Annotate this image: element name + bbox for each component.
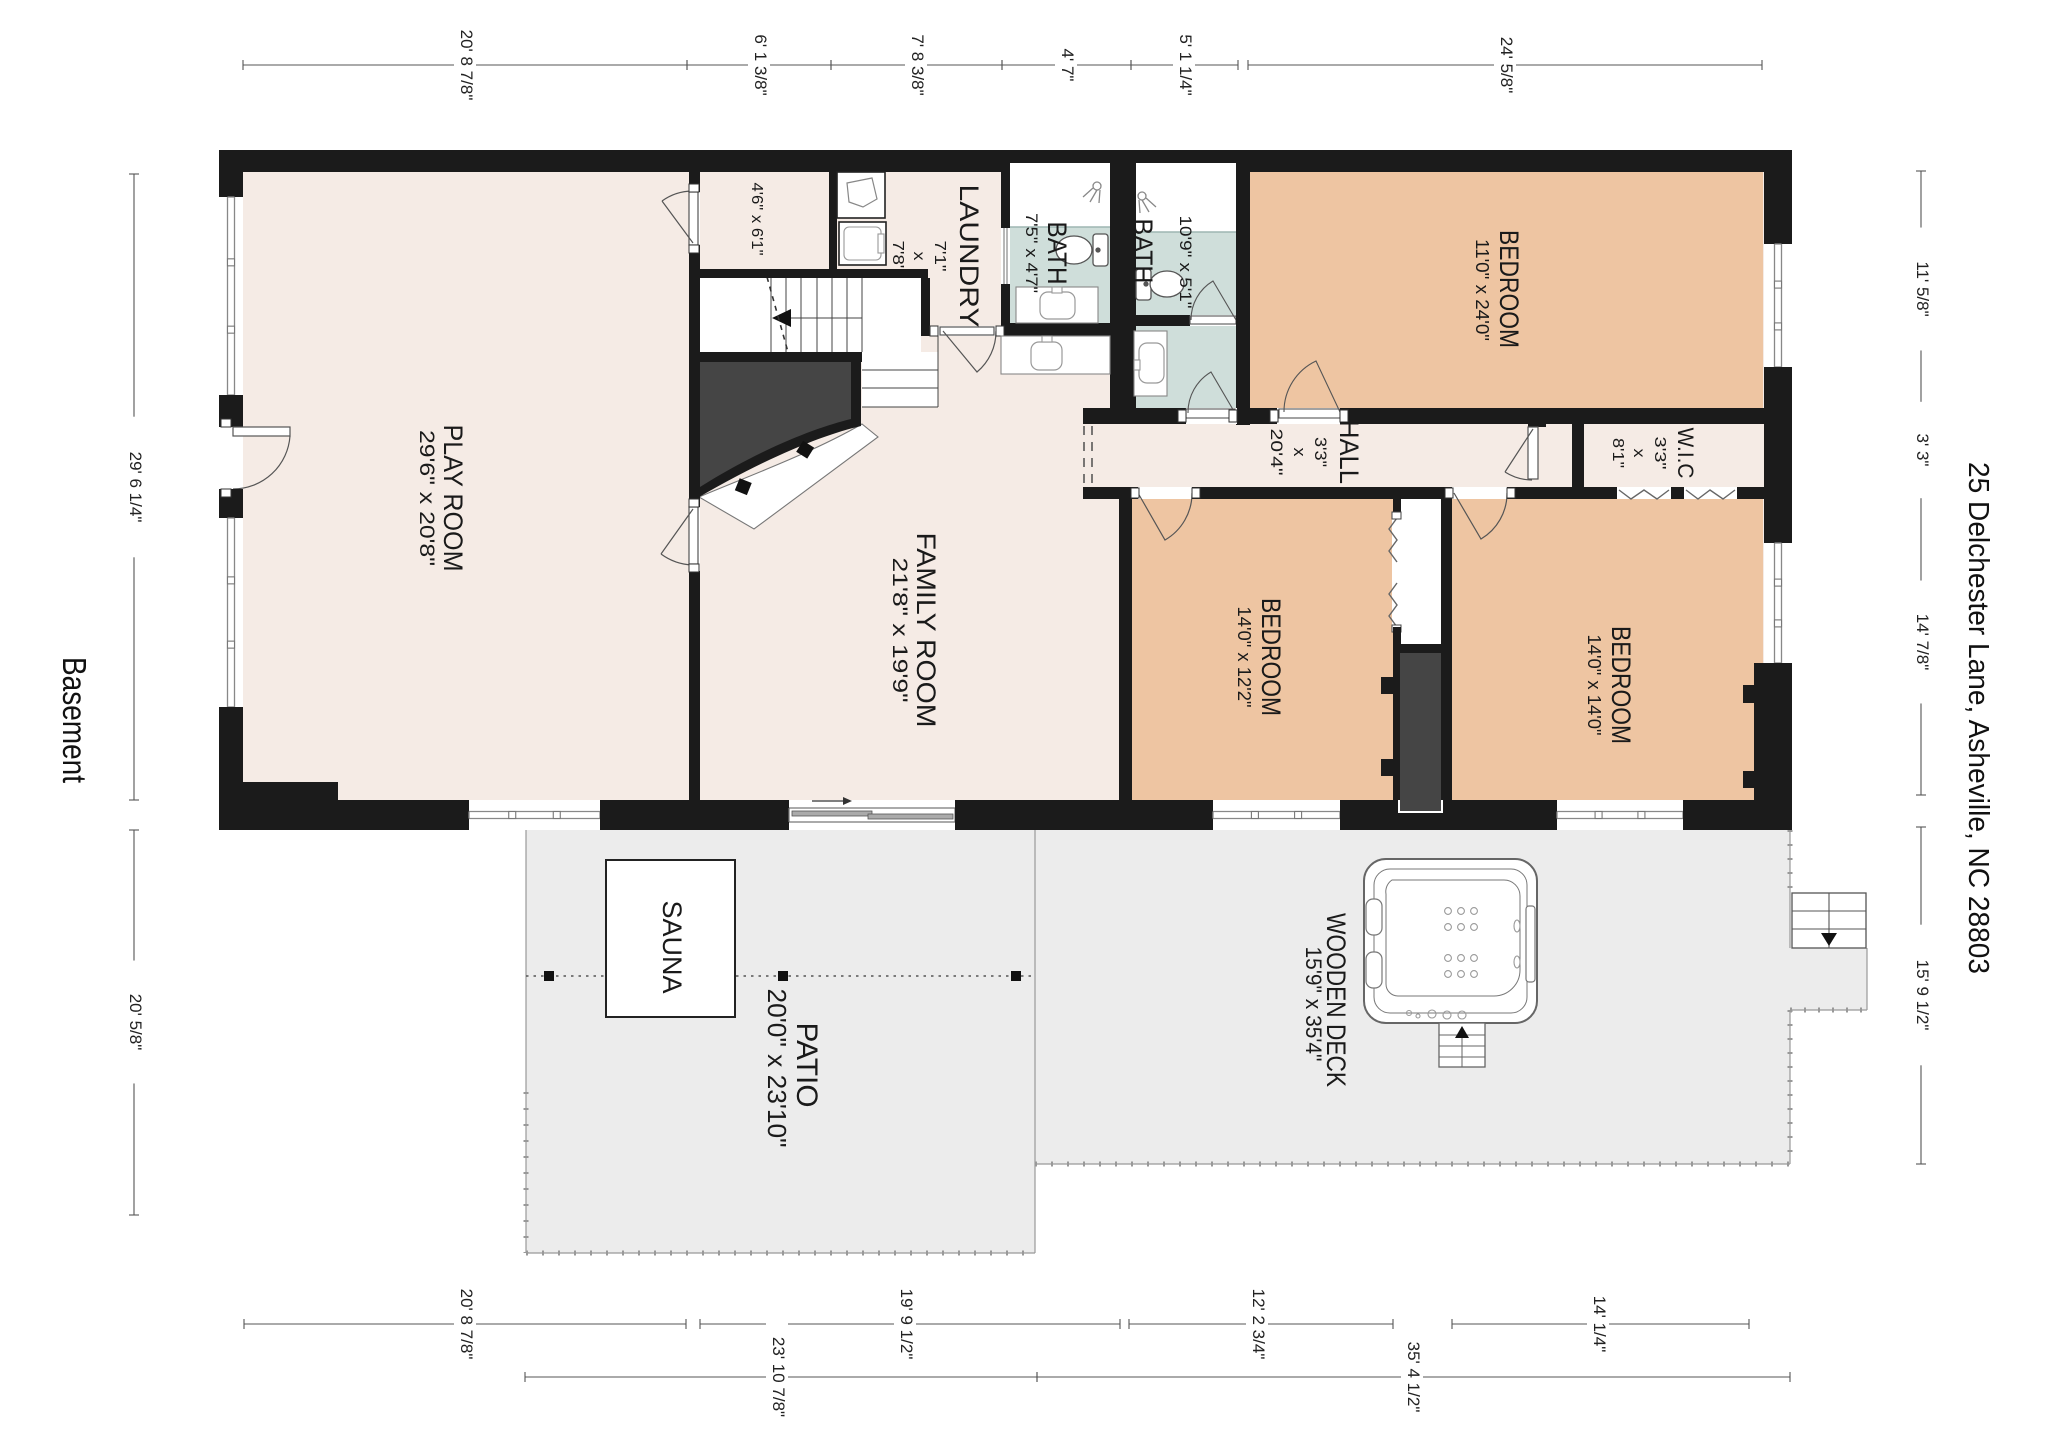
svg-text:7' 8 3/8": 7' 8 3/8" bbox=[908, 34, 927, 95]
svg-text:14'0" x 12'2": 14'0" x 12'2" bbox=[1234, 607, 1254, 708]
svg-text:29' 6 1/4": 29' 6 1/4" bbox=[126, 452, 145, 523]
svg-text:21'8" x 19'9": 21'8" x 19'9" bbox=[888, 558, 911, 703]
svg-text:15' 9 1/2": 15' 9 1/2" bbox=[1913, 960, 1932, 1031]
svg-text:35' 4 1/2": 35' 4 1/2" bbox=[1404, 1342, 1423, 1413]
svg-text:BEDROOM: BEDROOM bbox=[1494, 230, 1524, 348]
svg-text:BATH: BATH bbox=[1128, 219, 1158, 284]
svg-text:19' 9 1/2": 19' 9 1/2" bbox=[897, 1289, 916, 1360]
svg-text:W.I.C: W.I.C bbox=[1673, 428, 1698, 479]
svg-text:SAUNA: SAUNA bbox=[657, 900, 687, 993]
svg-text:8'1": 8'1" bbox=[1609, 438, 1626, 468]
svg-text:15'9" x 35'4": 15'9" x 35'4" bbox=[1301, 947, 1326, 1062]
svg-text:20'0" x 23'10": 20'0" x 23'10" bbox=[762, 989, 792, 1148]
svg-text:12' 2 3/4": 12' 2 3/4" bbox=[1249, 1289, 1268, 1360]
svg-text:10'9" x 5'1": 10'9" x 5'1" bbox=[1176, 216, 1195, 309]
svg-text:11'0" x 24'0": 11'0" x 24'0" bbox=[1472, 239, 1492, 341]
svg-text:4'6" x 6'1": 4'6" x 6'1" bbox=[748, 183, 765, 256]
svg-text:LAUNDRY: LAUNDRY bbox=[954, 185, 984, 328]
svg-text:7'8": 7'8" bbox=[889, 241, 906, 272]
svg-text:FAMILY ROOM: FAMILY ROOM bbox=[911, 533, 941, 728]
svg-text:x: x bbox=[1630, 449, 1647, 458]
svg-text:25 Delchester Lane, Asheville,: 25 Delchester Lane, Asheville, NC 28803 bbox=[1962, 462, 1994, 974]
svg-text:14' 1/4": 14' 1/4" bbox=[1590, 1296, 1609, 1353]
svg-text:3'3": 3'3" bbox=[1651, 437, 1668, 470]
svg-text:HALL: HALL bbox=[1334, 420, 1364, 484]
svg-text:5' 1 1/4": 5' 1 1/4" bbox=[1176, 34, 1195, 95]
svg-text:20' 8 7/8": 20' 8 7/8" bbox=[457, 30, 476, 101]
svg-text:29'6" x 20'8": 29'6" x 20'8" bbox=[415, 430, 438, 566]
svg-text:3' 3": 3' 3" bbox=[1913, 434, 1932, 467]
svg-text:BEDROOM: BEDROOM bbox=[1256, 598, 1286, 716]
svg-text:7'5" x 4'7": 7'5" x 4'7" bbox=[1022, 213, 1041, 293]
svg-text:PATIO: PATIO bbox=[790, 1023, 823, 1108]
svg-text:14'0" x 14'0": 14'0" x 14'0" bbox=[1584, 635, 1604, 736]
svg-text:20' 5/8": 20' 5/8" bbox=[126, 994, 145, 1051]
svg-text:x: x bbox=[1290, 448, 1309, 458]
svg-text:PLAY ROOM: PLAY ROOM bbox=[438, 425, 468, 572]
svg-text:7'1": 7'1" bbox=[931, 241, 948, 272]
svg-text:BEDROOM: BEDROOM bbox=[1606, 626, 1636, 744]
svg-text:23' 10 7/8": 23' 10 7/8" bbox=[769, 1337, 788, 1417]
svg-text:6' 1 3/8": 6' 1 3/8" bbox=[751, 34, 770, 95]
svg-text:BATH: BATH bbox=[1042, 222, 1072, 285]
svg-text:20'4": 20'4" bbox=[1267, 429, 1286, 476]
svg-text:11' 5/8": 11' 5/8" bbox=[1913, 261, 1932, 316]
svg-text:Basement: Basement bbox=[56, 657, 93, 783]
svg-text:3'3": 3'3" bbox=[1311, 437, 1330, 467]
svg-text:24' 5/8": 24' 5/8" bbox=[1497, 37, 1516, 94]
svg-text:20' 8 7/8": 20' 8 7/8" bbox=[457, 1289, 476, 1360]
svg-text:x: x bbox=[910, 252, 927, 261]
svg-text:4' 7": 4' 7" bbox=[1058, 49, 1077, 82]
svg-text:14' 7/8": 14' 7/8" bbox=[1913, 614, 1932, 671]
